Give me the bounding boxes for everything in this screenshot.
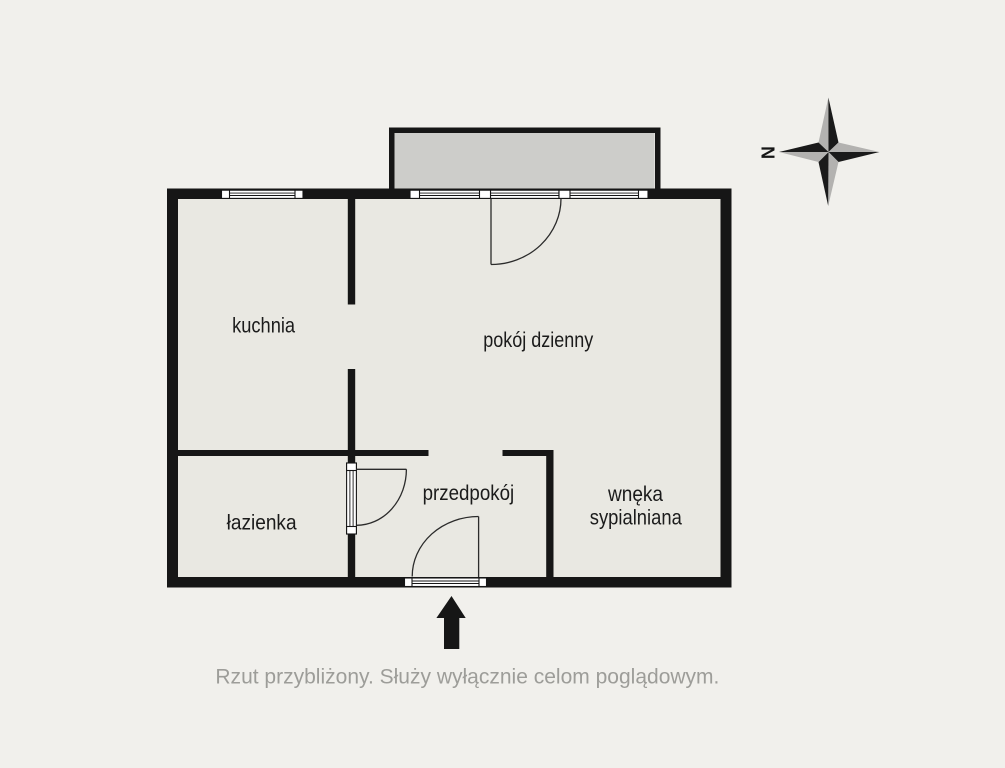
svg-text:przedpokój: przedpokój xyxy=(423,482,515,505)
svg-text:sypialniana: sypialniana xyxy=(590,507,682,530)
svg-text:kuchnia: kuchnia xyxy=(232,315,295,338)
svg-text:wnęka: wnęka xyxy=(607,483,663,506)
svg-text:łazienka: łazienka xyxy=(227,512,297,535)
svg-text:N: N xyxy=(759,146,779,159)
svg-text:Rzut przybliżony. Służy wyłącz: Rzut przybliżony. Służy wyłącznie celom … xyxy=(215,666,719,689)
svg-text:pokój dzienny: pokój dzienny xyxy=(483,329,593,352)
